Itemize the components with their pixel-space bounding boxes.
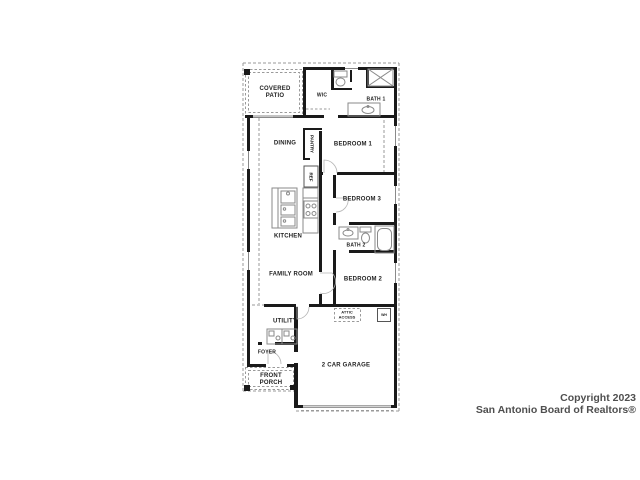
wall-pantry-top <box>303 128 322 130</box>
garage-entry-opening <box>296 304 309 307</box>
wall-bedroom3-left-upper <box>333 175 336 198</box>
door-swings <box>268 160 348 364</box>
post-porch-left <box>244 385 250 391</box>
shower-fixture-bath1 <box>368 69 393 86</box>
foyer-label: FOYER <box>258 350 276 356</box>
attic-access-label: ATTIC ACCESS <box>339 311 356 320</box>
vanity-sink-fixture-bath2 <box>339 227 358 239</box>
copyright-line2: San Antonio Board of Realtors® <box>476 405 636 417</box>
copyright-watermark: Copyright 2023 San Antonio Board of Real… <box>476 393 636 416</box>
foyer-door-opening <box>294 352 298 363</box>
wall-toilet-left <box>331 67 334 90</box>
bedroom3-label: BEDROOM 3 <box>343 197 381 204</box>
kitchen-island-fixture <box>272 188 297 228</box>
bedroom2-door-opening <box>336 250 349 253</box>
covered-patio-label: COVERED PATIO <box>259 86 290 100</box>
family-room-label: FAMILY ROOM <box>269 272 313 279</box>
wall-pantry-left <box>303 128 305 160</box>
island-sink-fixture <box>281 191 295 203</box>
bath2-label: BATH 2 <box>347 243 366 249</box>
dishwasher-fixture <box>281 205 295 215</box>
fixtures <box>267 69 394 344</box>
front-door-opening <box>266 364 287 367</box>
copyright-line1: Copyright 2023 <box>476 393 636 405</box>
post-patio-corner <box>244 69 250 75</box>
bedroom1-door-opening <box>323 172 337 175</box>
ref-label: REF <box>308 173 315 182</box>
bedroom1-label: BEDROOM 1 <box>334 142 372 149</box>
wall-toilet-bottom <box>331 88 352 90</box>
bath2-door-opening <box>336 222 349 225</box>
garage-label: 2 CAR GARAGE <box>322 363 370 370</box>
hall-door-opening <box>324 115 338 118</box>
toilet-fixture-bath1 <box>334 71 347 86</box>
range-fixture <box>304 201 318 218</box>
post-porch-right <box>290 385 295 390</box>
wic-label: WIC <box>317 93 327 99</box>
floor-plan-page: COVERED PATIO WIC BATH 1 DINING PANTRY B… <box>0 0 640 480</box>
garage-entry-swing <box>297 306 309 319</box>
bedroom1-door-swing <box>324 160 337 173</box>
pantry-label: PANTRY <box>309 135 316 153</box>
washer-dryer-fixture <box>267 329 297 344</box>
water-heater-label: WH <box>381 313 387 317</box>
toilet-fixture-bath2 <box>360 227 371 243</box>
dining-label: DINING <box>274 141 296 148</box>
bath1-label: BATH 1 <box>367 97 386 103</box>
kitchen-counter-fixture <box>303 188 318 233</box>
utility-label: UTILITY <box>273 319 297 326</box>
wall-main-bottom <box>264 304 397 307</box>
front-porch-label: FRONT PORCH <box>260 373 283 387</box>
family-hall-door-opening <box>319 272 322 294</box>
bedroom2-label: BEDROOM 2 <box>344 277 382 284</box>
bathtub-fixture-bath2 <box>375 226 394 253</box>
wall-wic-left <box>303 67 306 118</box>
kitchen-label: KITCHEN <box>274 234 302 241</box>
vanity-sink-fixture-bath1 <box>348 103 380 116</box>
walls <box>244 67 397 408</box>
